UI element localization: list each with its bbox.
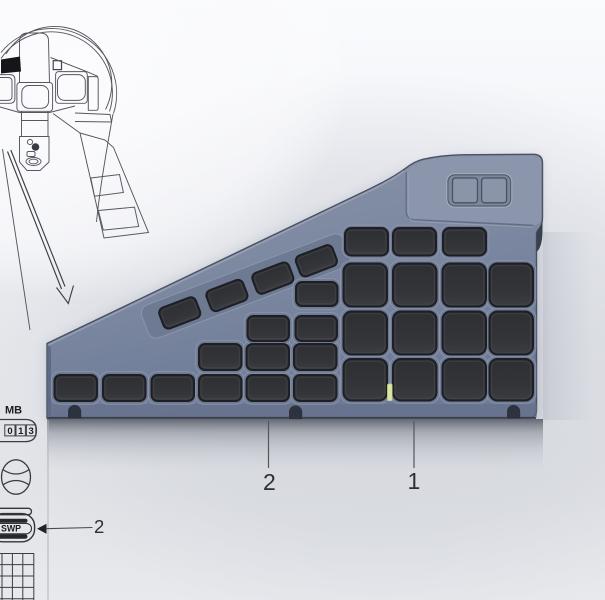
svg-text:0: 0 [7,426,12,437]
svg-text:SWP: SWP [1,524,21,534]
svg-text:1: 1 [18,426,24,437]
svg-text:3: 3 [29,426,34,437]
svg-text:2: 2 [263,469,276,495]
svg-text:1: 1 [408,468,421,494]
svg-text:2: 2 [94,516,104,537]
svg-text:MB: MB [5,405,22,417]
